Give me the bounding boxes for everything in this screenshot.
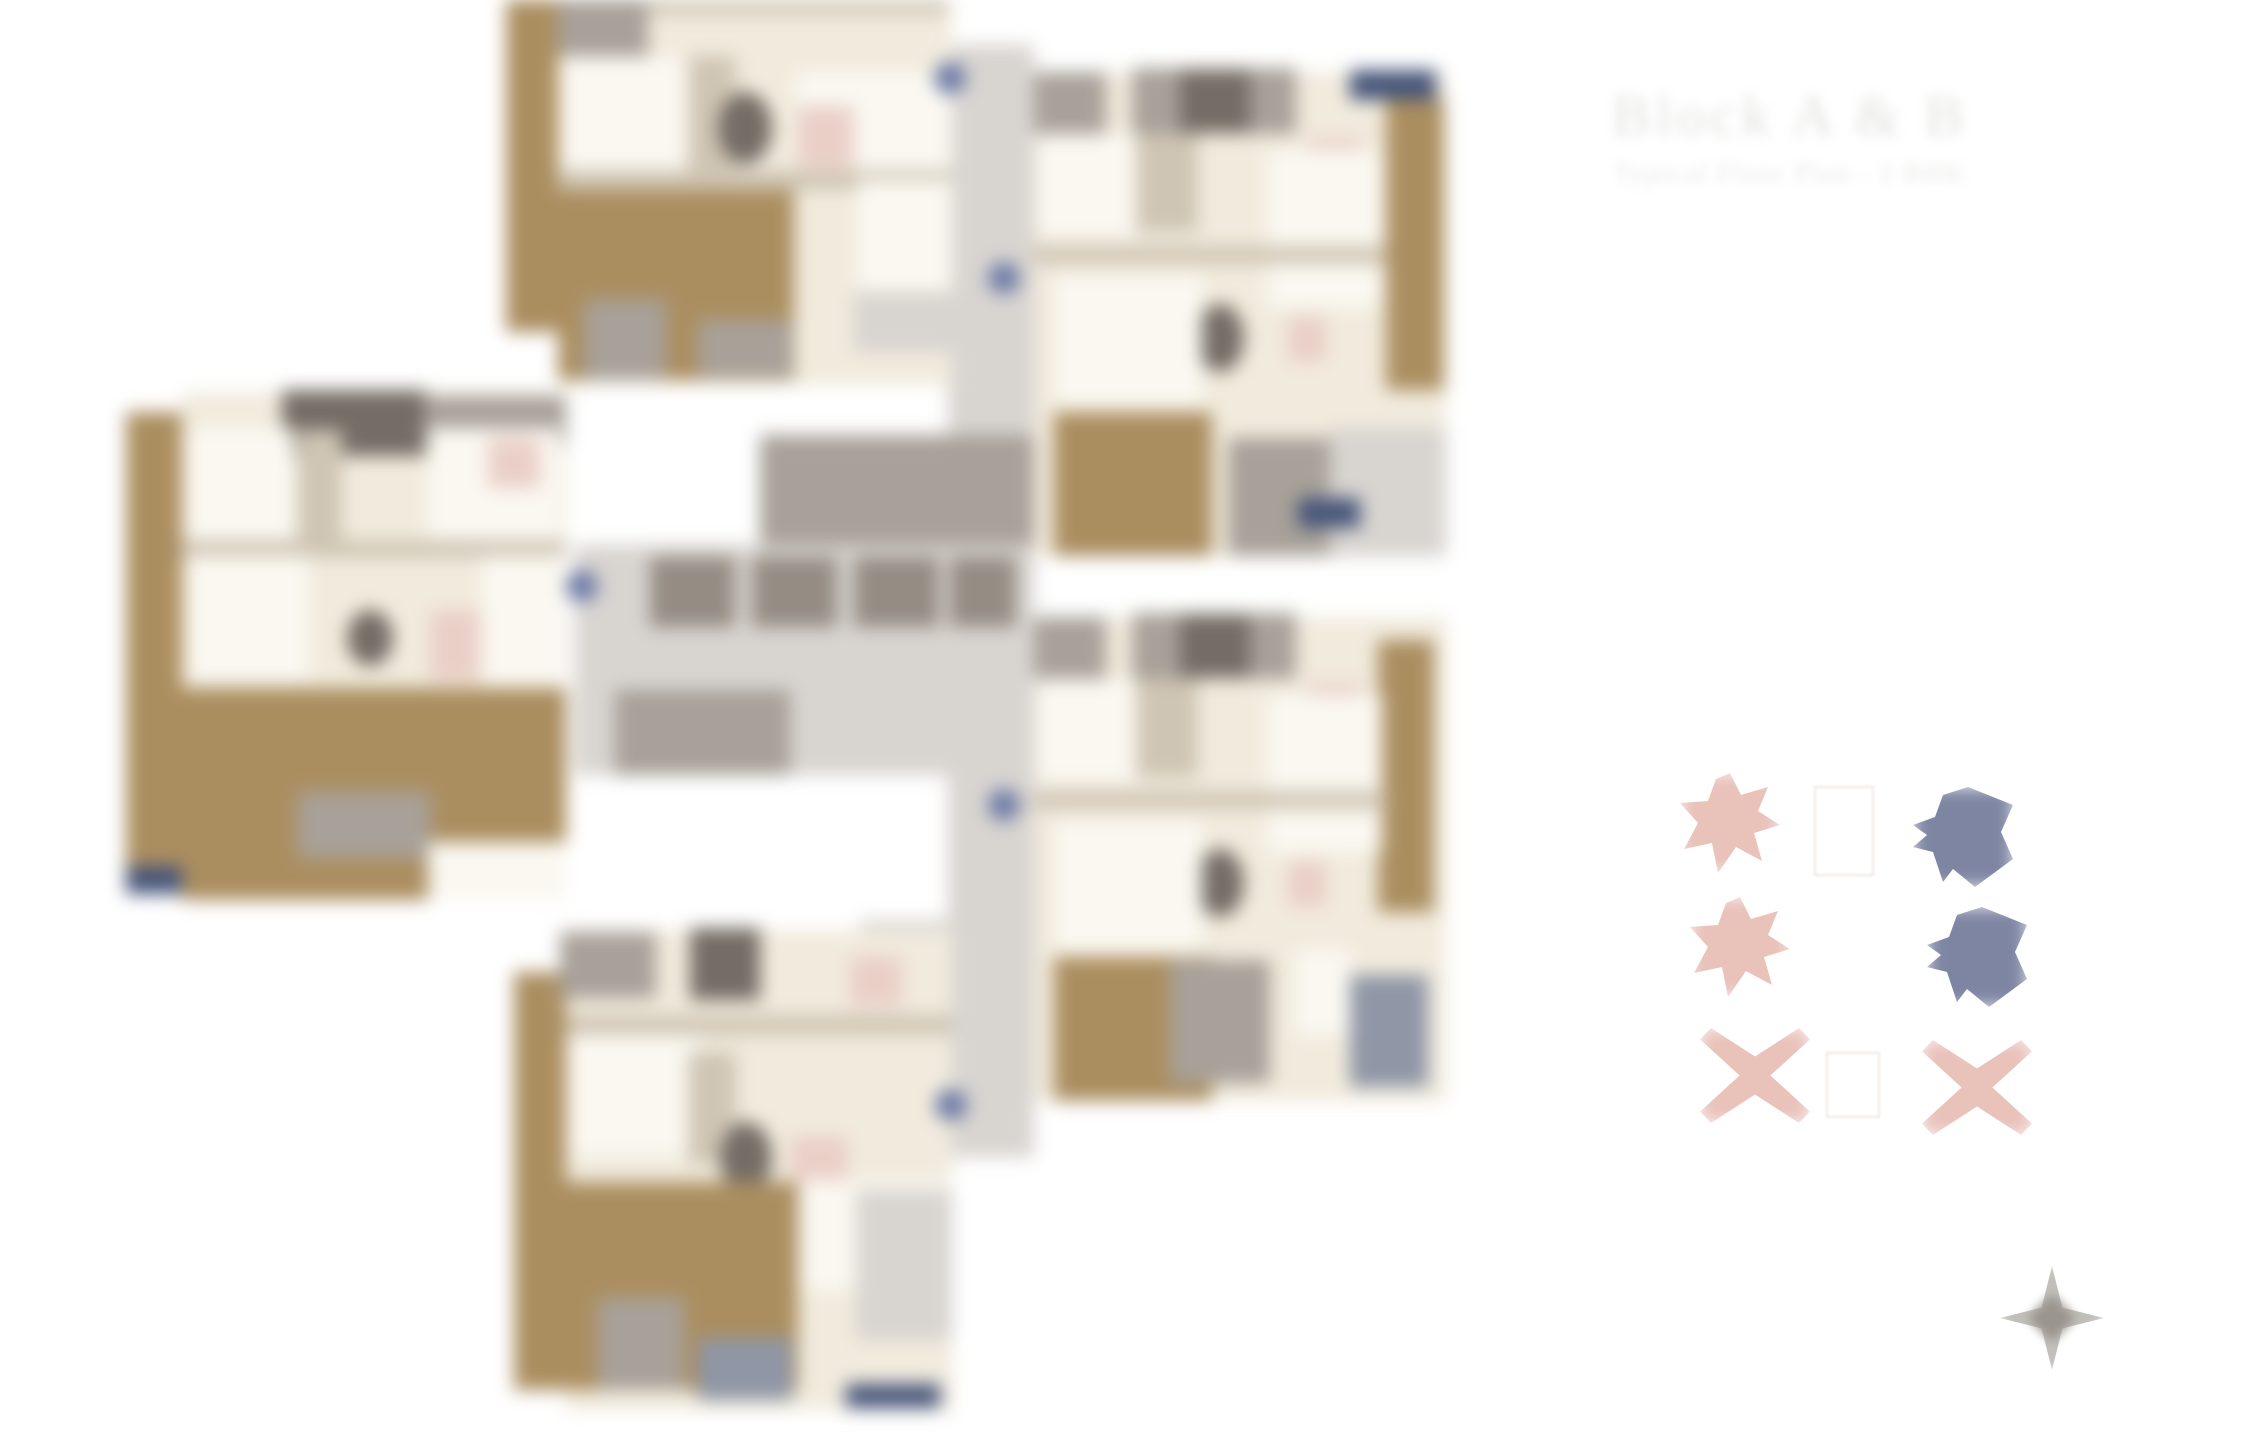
bedroom-block bbox=[186, 428, 294, 546]
utility-block bbox=[698, 1338, 792, 1400]
toilet-fixture bbox=[718, 92, 772, 164]
legend bbox=[1650, 750, 2080, 1160]
legend-box-1 bbox=[1814, 786, 1874, 876]
living-dining-wood bbox=[1054, 412, 1212, 556]
legend-marker-pink-cross-1 bbox=[1700, 1028, 1810, 1123]
bath-block bbox=[1288, 316, 1326, 362]
floor-plan-page: Block A & B Typical Floor Plan - 2 BHK bbox=[0, 0, 2250, 1440]
unit-number-badge bbox=[934, 62, 966, 94]
legend-box-2 bbox=[1826, 1052, 1880, 1118]
window-strip bbox=[1350, 70, 1436, 100]
hall-block bbox=[482, 556, 564, 686]
legend-marker-pink-star-1 bbox=[1680, 773, 1780, 873]
unit-number-badge bbox=[988, 262, 1020, 294]
wall-strip bbox=[298, 430, 342, 550]
compass bbox=[2000, 1266, 2104, 1370]
entry-core bbox=[1180, 615, 1250, 677]
toilet-fixture bbox=[1196, 849, 1244, 917]
bedroom-block bbox=[1268, 695, 1382, 853]
bedroom-block bbox=[1056, 276, 1202, 406]
unit-right-lower bbox=[1034, 613, 1446, 1101]
compass-center-icon bbox=[2028, 1294, 2076, 1342]
bedroom-block bbox=[1268, 150, 1382, 308]
foyer-block bbox=[1330, 428, 1446, 556]
unit-bottom bbox=[514, 928, 952, 1410]
bath-block bbox=[1288, 861, 1326, 907]
wall-strip bbox=[1136, 134, 1198, 232]
utility-block bbox=[698, 320, 792, 378]
balcony-wood-strip bbox=[1386, 98, 1444, 390]
unit-top bbox=[506, 0, 952, 385]
balcony-wood-strip bbox=[126, 412, 182, 880]
bath-block bbox=[798, 106, 854, 168]
bath-block bbox=[488, 438, 540, 488]
bedroom-block bbox=[570, 1035, 700, 1155]
utility-block bbox=[560, 932, 656, 998]
legend-marker-blue-star-2 bbox=[1927, 907, 2027, 1007]
wall-strip bbox=[566, 1015, 952, 1035]
balcony-slate-block bbox=[1350, 975, 1428, 1087]
foyer-block bbox=[854, 292, 952, 352]
lift-shaft bbox=[854, 557, 939, 627]
balcony-wood-strip bbox=[514, 972, 566, 1390]
entry-block bbox=[690, 928, 760, 1000]
wall-strip bbox=[1136, 679, 1198, 777]
bedroom-block bbox=[1038, 134, 1136, 236]
kitchen-block bbox=[1228, 438, 1330, 556]
utility-block bbox=[558, 0, 648, 56]
kitchen-block bbox=[1170, 960, 1270, 1083]
window-strip bbox=[1298, 498, 1360, 528]
bedroom-block bbox=[562, 58, 688, 170]
bath-block bbox=[430, 610, 480, 680]
kitchen-block bbox=[584, 300, 666, 380]
toilet-fixture bbox=[347, 610, 393, 666]
wall-strip bbox=[1034, 246, 1386, 264]
floor-plan-graphic bbox=[0, 0, 2250, 1440]
kitchen-block bbox=[298, 792, 430, 858]
legend-marker-blue-star-1 bbox=[1913, 787, 2013, 887]
central-core bbox=[575, 435, 1034, 775]
page-subtitle: Typical Floor Plan - 2 BHK bbox=[1614, 158, 2132, 189]
legend-marker-pink-cross-2 bbox=[1922, 1040, 2032, 1135]
stair-block bbox=[760, 435, 1034, 547]
foyer-block bbox=[428, 842, 566, 900]
page-title: Block A & B bbox=[1612, 84, 2132, 148]
lift-shaft bbox=[752, 557, 837, 627]
unit-left bbox=[126, 390, 566, 900]
hall-block bbox=[858, 180, 952, 290]
entry-core bbox=[1180, 70, 1250, 132]
hall-block bbox=[856, 1190, 952, 1340]
wall-strip bbox=[1034, 791, 1386, 809]
lift-shaft bbox=[950, 557, 1016, 627]
balcony-wood-strip bbox=[1378, 640, 1434, 912]
wall-strip bbox=[648, 0, 948, 14]
legend-marker-pink-star-2 bbox=[1690, 897, 1790, 997]
unit-number-badge bbox=[935, 1089, 967, 1121]
lift-shaft bbox=[650, 557, 735, 627]
bedroom-block bbox=[188, 556, 308, 680]
utility-block bbox=[1034, 617, 1106, 679]
floor-plan-svg bbox=[0, 0, 2250, 1440]
wall-strip bbox=[182, 540, 566, 558]
title-block: Block A & B Typical Floor Plan - 2 BHK bbox=[1612, 84, 2132, 189]
unit-right-upper bbox=[1034, 68, 1446, 556]
bedroom-block bbox=[1056, 821, 1202, 951]
unit-number-badge bbox=[988, 789, 1020, 821]
balcony-wood-strip bbox=[506, 0, 558, 332]
kitchen-block bbox=[598, 1298, 684, 1390]
bedroom-block bbox=[1038, 679, 1136, 781]
utility-block bbox=[1034, 72, 1106, 134]
stair-block-lower bbox=[615, 690, 790, 775]
bath-block bbox=[850, 956, 902, 1006]
unit-number-badge bbox=[566, 570, 598, 602]
hall-block bbox=[1296, 950, 1350, 1035]
window-strip bbox=[846, 1384, 940, 1408]
toilet-fixture bbox=[1196, 304, 1244, 372]
